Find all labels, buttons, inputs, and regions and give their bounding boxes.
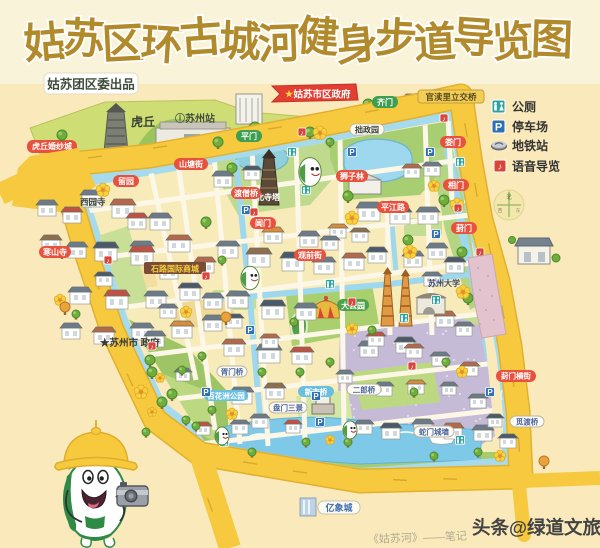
svg-text:步: 步 [374, 14, 418, 63]
svg-text:姑苏市区政府: 姑苏市区政府 [293, 89, 351, 101]
svg-text:P: P [203, 388, 209, 397]
svg-text:相门: 相门 [448, 180, 464, 190]
svg-text:东: 东 [516, 207, 521, 213]
svg-text:♪: ♪ [456, 206, 460, 213]
svg-text:苏州大学: 苏州大学 [428, 278, 460, 288]
svg-text:齐门: 齐门 [376, 97, 393, 107]
svg-text:P: P [313, 392, 319, 401]
svg-text:虎丘: 虎丘 [131, 114, 155, 129]
svg-text:♪: ♪ [204, 274, 208, 281]
svg-text:区: 区 [101, 19, 145, 68]
svg-text:官渎里立交桥: 官渎里立交桥 [425, 92, 477, 102]
svg-text:P: P [243, 206, 249, 215]
svg-text:P: P [495, 122, 502, 134]
svg-text:石路国际商城: 石路国际商城 [150, 264, 199, 274]
svg-text:觅渡桥: 觅渡桥 [516, 417, 539, 427]
svg-text:P: P [349, 148, 355, 157]
svg-text:P: P [433, 230, 439, 239]
svg-text:苏: 苏 [62, 14, 106, 63]
svg-text:寒山寺: 寒山寺 [42, 247, 67, 257]
svg-text:蛇门城墙: 蛇门城墙 [419, 427, 449, 437]
svg-text:地铁站: 地铁站 [512, 138, 548, 153]
svg-text:P: P [317, 418, 323, 427]
svg-text:头条@绿道文旅: 头条@绿道文旅 [472, 517, 600, 538]
svg-text:古: 古 [178, 13, 223, 63]
svg-text:盘门三景: 盘门三景 [273, 403, 303, 413]
svg-text:身: 身 [334, 19, 380, 69]
svg-text:♪: ♪ [410, 364, 414, 371]
svg-text:♪: ♪ [350, 300, 354, 307]
svg-text:姑苏团区委出品: 姑苏团区委出品 [47, 77, 135, 92]
svg-text:二郎桥: 二郎桥 [353, 385, 376, 395]
svg-text:♪: ♪ [252, 210, 256, 217]
svg-text:河: 河 [257, 19, 301, 67]
svg-text:西园寺: 西园寺 [80, 197, 106, 207]
svg-text:山塘街: 山塘街 [179, 159, 203, 169]
svg-text:留园: 留园 [118, 176, 134, 186]
svg-text:P: P [487, 388, 493, 397]
svg-text:停车场: 停车场 [512, 119, 548, 134]
svg-text:百花洲公园: 百花洲公园 [207, 391, 245, 401]
svg-text:环: 环 [139, 20, 184, 70]
svg-text:♪: ♪ [442, 116, 446, 123]
svg-text:P: P [247, 326, 253, 335]
svg-text:葑门: 葑门 [456, 223, 472, 233]
svg-text:平门: 平门 [241, 131, 257, 141]
svg-text:虎丘婚纱城: 虎丘婚纱城 [32, 141, 72, 151]
svg-text:阊门: 阊门 [255, 218, 271, 228]
svg-text:娄门: 娄门 [445, 137, 461, 147]
svg-text:渡僧桥: 渡僧桥 [234, 188, 259, 198]
svg-text:公厕: 公厕 [512, 99, 536, 114]
svg-text:亿象城: 亿象城 [325, 502, 352, 513]
svg-text:览: 览 [491, 17, 535, 66]
svg-text:狮子林: 狮子林 [339, 171, 364, 181]
svg-text:♪: ♪ [300, 130, 304, 137]
svg-text:拙政园: 拙政园 [355, 125, 379, 135]
svg-text:北: 北 [506, 194, 511, 201]
svg-text:♪: ♪ [498, 162, 503, 172]
svg-text:平江路: 平江路 [381, 202, 406, 212]
svg-text:P: P [427, 148, 433, 157]
svg-text:道: 道 [413, 18, 457, 67]
svg-text:ⓘ苏州站: ⓘ苏州站 [175, 112, 215, 125]
svg-text:♪: ♪ [150, 344, 154, 351]
svg-text:健: 健 [295, 12, 340, 62]
svg-text:图: 图 [530, 15, 574, 63]
svg-text:♪: ♪ [106, 258, 110, 265]
svg-text:胥门桥: 胥门桥 [221, 367, 244, 377]
svg-text:葑门横街: 葑门横街 [501, 371, 531, 381]
svg-text:观前街: 观前街 [298, 250, 322, 260]
svg-text:城: 城 [218, 17, 262, 66]
svg-text:语音导览: 语音导览 [512, 159, 560, 174]
